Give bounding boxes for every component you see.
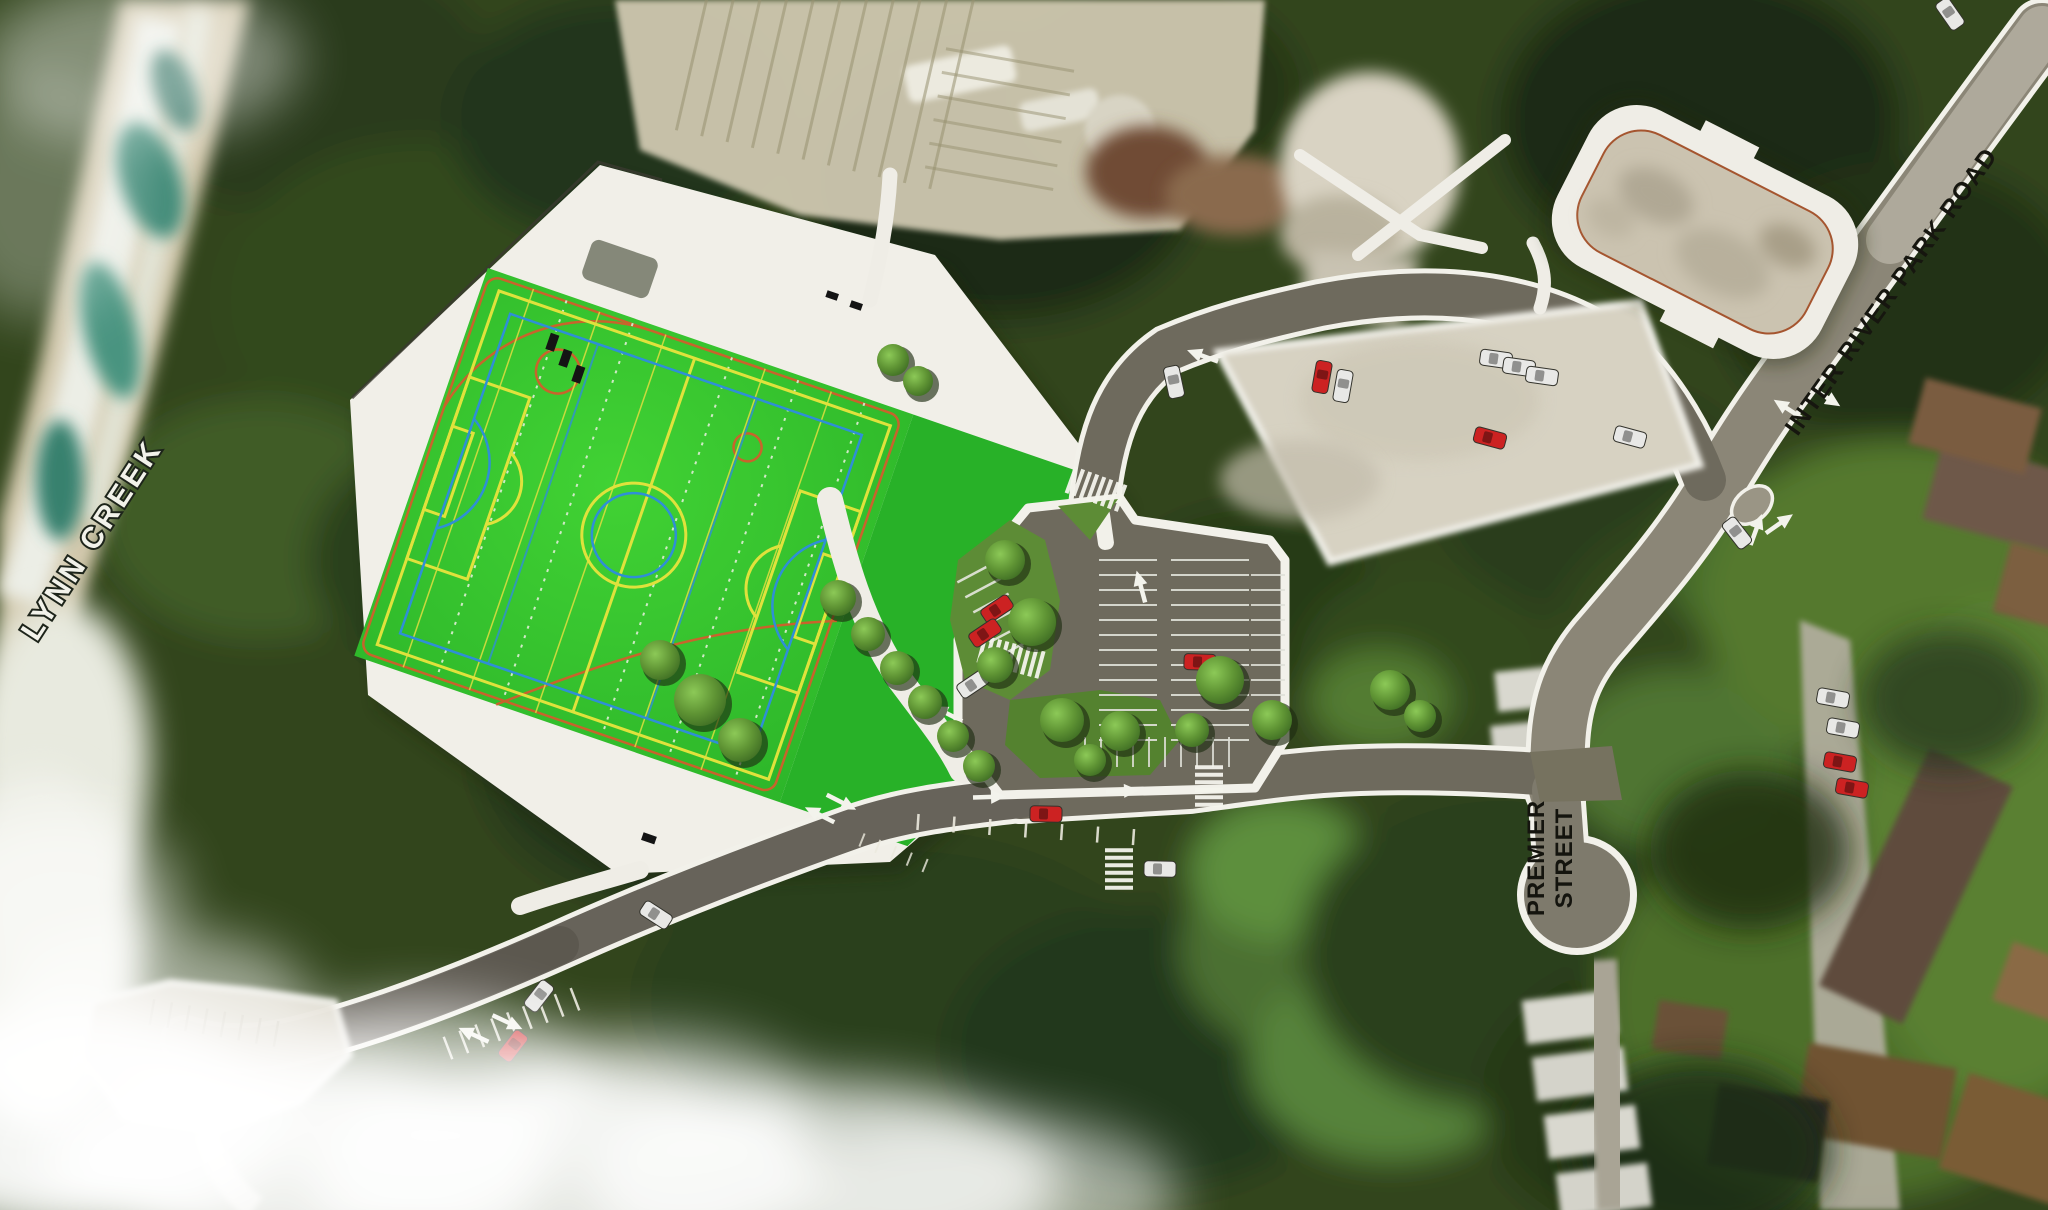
car: [1030, 806, 1062, 823]
site-plan-svg: LYNN CREEK INTER RIVER PARK ROAD PREMIER…: [0, 0, 2048, 1210]
premier-street-label-line1: PREMIER: [1523, 800, 1550, 916]
site-plan-page: LYNN CREEK INTER RIVER PARK ROAD PREMIER…: [0, 0, 2048, 1210]
junction-flare: [1530, 746, 1622, 802]
premier-street-label-line2: STREET: [1551, 808, 1578, 909]
car: [1144, 861, 1176, 878]
